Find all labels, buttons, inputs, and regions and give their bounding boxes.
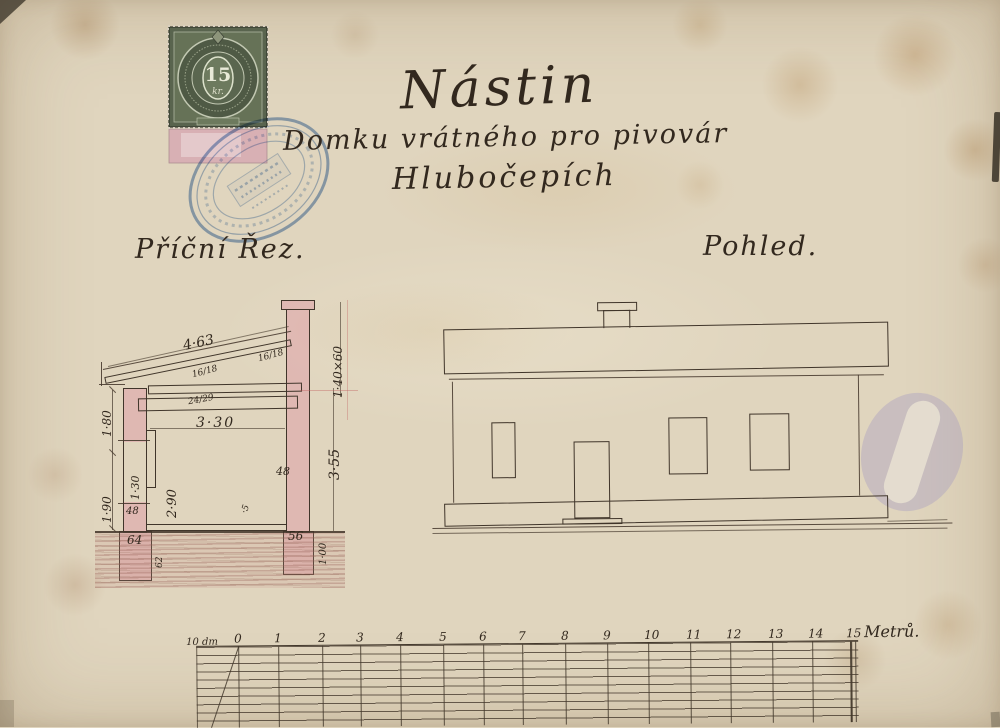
cs-dim-height-right: 3·55 (328, 449, 342, 480)
cs-ceiling-beam-upper (148, 383, 302, 395)
el-plinth (444, 495, 888, 527)
scale-grid-left-edge (196, 647, 198, 728)
scale-tick-label: 9 (603, 628, 611, 642)
cs-eave-bottom (99, 384, 125, 385)
photo-corner-top-left (0, 0, 26, 24)
revenue-stamp-value: 15 (205, 64, 231, 86)
cs-dim-rafter-mid: 16/18 (191, 365, 218, 380)
cs-dim-wall-left: 48 (126, 507, 139, 517)
scale-tick-label: 5 (439, 630, 447, 644)
cs-red-guide-v (347, 300, 348, 420)
elevation-label: Pohled. (703, 233, 818, 260)
el-window-2 (668, 417, 708, 474)
photo-edge-right (992, 112, 1000, 182)
scale-tick-line (730, 642, 732, 723)
el-cornice-line (449, 374, 884, 380)
el-roof-band (443, 322, 889, 375)
cs-ceiling-beam-lower (138, 396, 298, 412)
revenue-stamp-unit: kr. (212, 87, 224, 97)
cs-red-guide-h (300, 390, 358, 391)
scale-tick-label: 15 (846, 626, 861, 640)
document-subtitle: Domku vrátného pro pivovár (283, 120, 729, 155)
scale-tick-line (278, 646, 280, 727)
cs-window-sill (118, 503, 150, 504)
el-wall-right-edge (858, 375, 861, 496)
el-window-3 (749, 413, 790, 470)
scale-tick-label: 14 (808, 626, 823, 640)
scale-tick-line (400, 645, 402, 726)
scale-tick-label: 1 (274, 631, 282, 645)
document-subtitle-place: Hlubočepích (392, 161, 617, 195)
photo-corner-bottom-right (991, 712, 1000, 727)
scale-grid (196, 640, 859, 728)
scale-tick-line (812, 642, 814, 723)
cross-section-label: Příční Řez. (135, 236, 306, 263)
scale-tick-label: 8 (561, 629, 569, 643)
scale-tick-line (772, 642, 774, 723)
scale-tick-line (443, 645, 445, 726)
cs-window-sash (146, 430, 156, 488)
ink-stamp-center-tablet (227, 154, 290, 207)
cs-dim-wall-right: 48 (276, 466, 290, 477)
cs-dim-interior-height: 2·90 (166, 489, 179, 518)
scale-tick-line (690, 643, 692, 724)
cs-floor (147, 524, 287, 531)
el-ground-line-2 (432, 528, 947, 534)
el-wall-left-edge (452, 382, 455, 503)
scale-tick-line (483, 644, 485, 725)
scale-tick-line (238, 647, 240, 728)
cs-dim-foundation-right: 56 (288, 530, 303, 542)
el-window-1 (491, 422, 516, 478)
photo-edge-bottom-left (0, 700, 14, 727)
scale-diagonal-line (211, 647, 239, 728)
scale-tick-label: 3 (356, 630, 364, 644)
cs-dim-window-height: 1·30 (130, 476, 141, 501)
scale-tick-label: 12 (726, 627, 741, 641)
cs-dim-left-upper: 1·80 (101, 410, 113, 437)
cs-dim-floor-layer: ·5 (241, 504, 252, 515)
cs-dim-foundation-left-depth: 62 (156, 557, 165, 568)
scale-tick-line (522, 644, 524, 725)
scale-tick-line (565, 644, 567, 725)
cs-dim-interior-width: 3·30 (196, 416, 235, 430)
cs-dim-chimney: 1·40×60 (332, 346, 344, 398)
scale-tick-label: 10 (644, 628, 659, 642)
scale-tick-label: 7 (518, 629, 526, 643)
scale-tick-label: 6 (479, 629, 487, 643)
cs-dim-foundation-right-depth: 1·00 (319, 543, 329, 565)
scale-unit-label: Metrů. (864, 624, 919, 640)
cs-dim-foundation-left: 64 (127, 534, 142, 546)
scale-grid-right-edge-2 (855, 641, 857, 722)
scale-tick-line (607, 643, 609, 724)
scale-tick-label: 2 (318, 631, 326, 645)
scale-tick-label: 13 (768, 627, 783, 641)
scale-tick-line (648, 643, 650, 724)
scale-bar: 10 dm Metrů. 0123456789101112131415 (186, 621, 967, 727)
document-title: Nástin (399, 59, 599, 118)
scale-tick-label: 0 (234, 632, 242, 646)
cs-dim-left-lower: 1·90 (101, 496, 113, 523)
scanned-drawing-page: { "title_block": { "title": "Nástin", "l… (0, 0, 1000, 727)
elevation-drawing (430, 290, 953, 545)
cs-dim-roof-slope: 4·63 (182, 333, 215, 353)
el-ground-line-3 (887, 519, 947, 522)
scale-tick-line (360, 645, 362, 726)
scale-tick-label: 4 (396, 630, 404, 644)
scale-tick-line (322, 646, 324, 727)
cs-eave-edge (101, 362, 102, 386)
scale-tick-label: 11 (686, 628, 701, 642)
